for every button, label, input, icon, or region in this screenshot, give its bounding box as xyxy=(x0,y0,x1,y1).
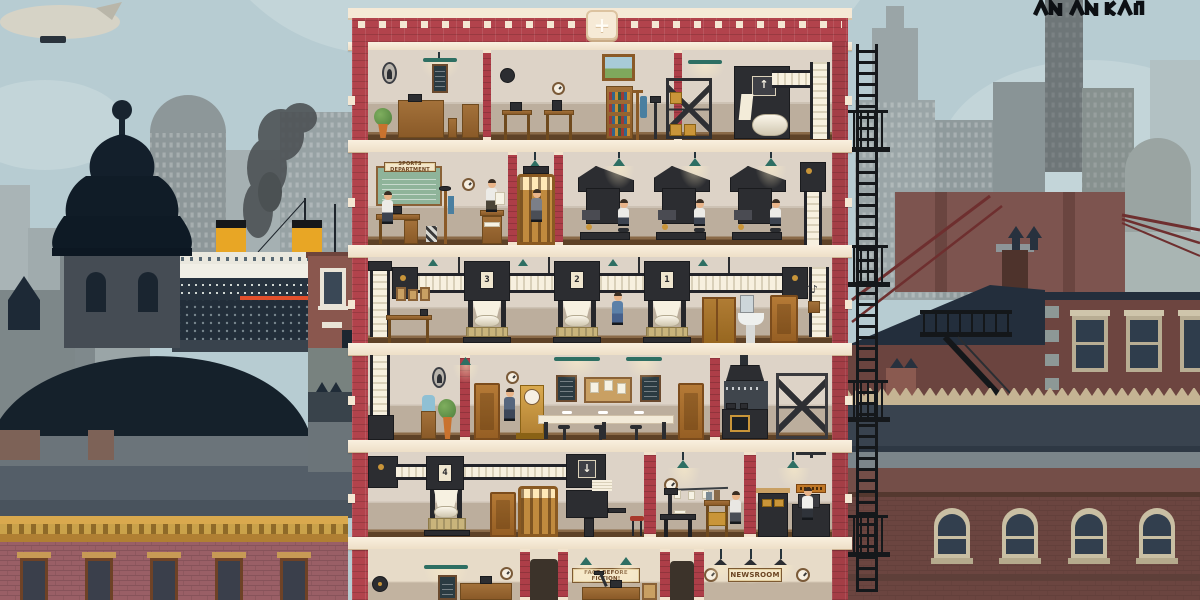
paper-chute xyxy=(370,355,390,417)
fire-escape[interactable] xyxy=(846,44,890,592)
left-wall xyxy=(352,42,368,600)
scarf xyxy=(448,196,454,214)
typewriter xyxy=(408,94,422,102)
wall-frame xyxy=(408,289,418,301)
wall-board xyxy=(432,64,448,93)
right-upper-windows xyxy=(1070,310,1200,372)
paper-chute xyxy=(370,267,390,337)
fire-escape-platform xyxy=(846,282,890,287)
press-number-plate: 1 xyxy=(660,271,674,289)
pendant-lamp xyxy=(580,557,592,565)
office-worker xyxy=(802,496,813,520)
typewriter xyxy=(480,576,492,584)
coat-stand xyxy=(636,92,639,140)
pendant-lamp xyxy=(620,557,632,565)
chute-base xyxy=(368,415,394,440)
floor-press4-photolab[interactable]: 4 ↓ xyxy=(368,452,832,537)
pendant-lamp xyxy=(787,460,799,468)
water-cooler-bottle xyxy=(422,395,435,411)
landscape-painting xyxy=(602,54,635,81)
wall-clock xyxy=(506,371,519,384)
crate xyxy=(684,124,696,136)
pendant-lamp xyxy=(689,158,701,166)
fire-escape-platform xyxy=(846,417,890,422)
fire-escape-platform xyxy=(846,147,890,152)
press-worker xyxy=(612,301,623,325)
plate xyxy=(634,411,644,414)
door[interactable] xyxy=(490,492,516,537)
press-number-plate: 4 xyxy=(438,464,452,482)
pilaster xyxy=(558,549,568,600)
press-number-plate: 3 xyxy=(480,271,494,289)
stool xyxy=(448,118,457,138)
door[interactable] xyxy=(474,383,500,440)
coat-rack xyxy=(444,190,447,244)
tenement-building xyxy=(306,252,354,356)
photo xyxy=(688,491,695,500)
pilaster xyxy=(520,549,530,600)
floor-newsroom[interactable]: FACT BEFORE FICTION! NEWSROOM xyxy=(368,549,832,600)
pendant-lamp xyxy=(698,259,708,266)
wall-clock xyxy=(500,567,513,580)
right-foreground-buildings xyxy=(848,285,1200,600)
linotype-operator xyxy=(618,208,629,226)
add-floor-button[interactable]: + xyxy=(586,10,618,40)
person-in-elevator xyxy=(531,198,542,222)
plant xyxy=(374,108,392,126)
bench-vice xyxy=(420,309,428,316)
pendant-lamp xyxy=(613,158,625,166)
camera-head xyxy=(650,96,661,103)
door[interactable] xyxy=(770,295,798,343)
standing-person xyxy=(504,397,515,421)
press-number-plate: 2 xyxy=(570,271,584,289)
newsroom-sign: NEWSROOM xyxy=(728,568,782,582)
hat xyxy=(439,186,451,191)
fire-escape-platform xyxy=(846,552,890,557)
pendant-lamp xyxy=(428,259,438,266)
radio xyxy=(808,301,820,313)
mirror xyxy=(740,295,754,313)
cabinet xyxy=(462,104,479,138)
sports-department-sign: SPORTS DEPARTMENT xyxy=(384,162,436,172)
plate xyxy=(562,411,572,414)
dark-dotted-building xyxy=(172,300,308,352)
floor-press-hall[interactable]: 3 2 1 xyxy=(368,257,832,343)
pilaster xyxy=(660,549,670,600)
elevator[interactable] xyxy=(518,486,558,537)
paper-chute xyxy=(804,192,822,245)
roll-top-desk xyxy=(398,100,444,138)
conveyor-wall-box xyxy=(368,456,398,488)
stacker-body xyxy=(566,490,608,518)
camera-tripod xyxy=(654,103,657,139)
door[interactable] xyxy=(678,383,704,440)
lockers xyxy=(702,297,736,347)
wall-clock xyxy=(552,82,565,95)
sink xyxy=(738,313,764,325)
paper-chute xyxy=(810,62,830,139)
pendant-lamp xyxy=(765,158,777,166)
pot xyxy=(726,403,736,409)
oven-door xyxy=(730,415,750,432)
paper-conveyor xyxy=(396,464,572,480)
linotype-operator xyxy=(694,208,705,226)
dark-doorway xyxy=(670,561,694,600)
floor-archive-office[interactable]: ↑ xyxy=(368,50,832,140)
wall-frame xyxy=(396,287,406,301)
photographer xyxy=(730,500,741,524)
hanging-utensils xyxy=(726,387,762,390)
left-foreground-building xyxy=(0,516,348,600)
wall-reel xyxy=(500,68,515,83)
newspaper-building: + xyxy=(348,8,852,600)
pendant-lamp xyxy=(518,259,528,266)
elevator-motor xyxy=(523,166,549,174)
paper-roll xyxy=(752,114,788,136)
hanging-cloth xyxy=(640,96,647,118)
pilaster xyxy=(744,452,756,537)
kitchen-hood xyxy=(726,365,764,381)
pendant-lamp xyxy=(608,259,618,266)
floor-sports-linotype[interactable]: SPORTS DEPARTMENT xyxy=(368,152,832,245)
desk-device xyxy=(552,100,562,111)
game-scene: + xyxy=(0,0,1200,600)
chalkboard xyxy=(438,575,457,600)
pilaster xyxy=(554,152,563,245)
person-typing xyxy=(382,200,393,224)
wall-clock xyxy=(796,568,810,582)
crate xyxy=(670,92,682,104)
portrait-frame xyxy=(432,367,446,388)
wall-frame xyxy=(642,583,657,600)
metal-shelving xyxy=(776,373,828,439)
water-cooler-stand xyxy=(421,411,436,439)
camera-head xyxy=(664,488,678,495)
pilaster xyxy=(508,152,517,245)
dark-doorway xyxy=(530,559,558,600)
plate xyxy=(598,411,608,414)
bottle xyxy=(706,492,712,500)
wall-clock xyxy=(462,178,475,191)
linotype-operator xyxy=(770,208,781,226)
pendant-lamp xyxy=(677,460,689,468)
newspaper xyxy=(495,192,505,205)
dining-table xyxy=(538,415,674,424)
portrait-frame xyxy=(382,62,397,84)
wall-frame xyxy=(420,287,430,301)
conveyor-head xyxy=(800,162,826,192)
editor-desk xyxy=(582,587,640,600)
down-arrow-plate: ↓ xyxy=(578,460,596,478)
waste-basket xyxy=(426,226,437,242)
desk-device xyxy=(510,102,522,111)
pilaster xyxy=(483,50,491,140)
crate xyxy=(670,124,682,136)
reception-desk xyxy=(460,583,512,600)
music-notes: ♪♪ xyxy=(804,283,826,297)
floor-canteen[interactable] xyxy=(368,355,832,440)
plant xyxy=(438,399,456,419)
right-wall xyxy=(832,42,848,600)
bottle xyxy=(714,490,720,500)
pilaster xyxy=(644,452,656,537)
paper-stack xyxy=(592,480,612,491)
typewriter xyxy=(610,580,622,588)
pilaster xyxy=(710,355,720,440)
pot xyxy=(740,403,748,409)
